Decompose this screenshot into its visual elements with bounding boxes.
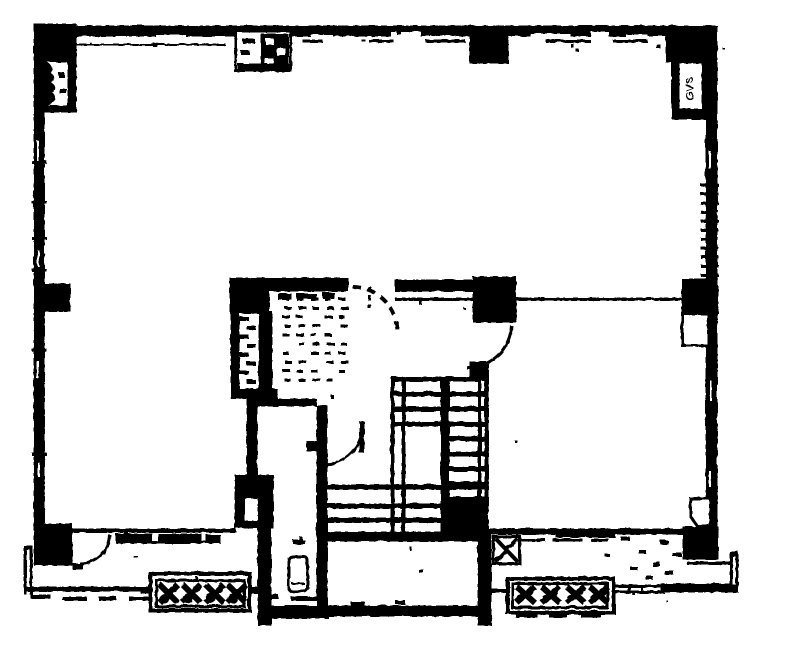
svg-text:GVS: GVS (684, 76, 696, 99)
